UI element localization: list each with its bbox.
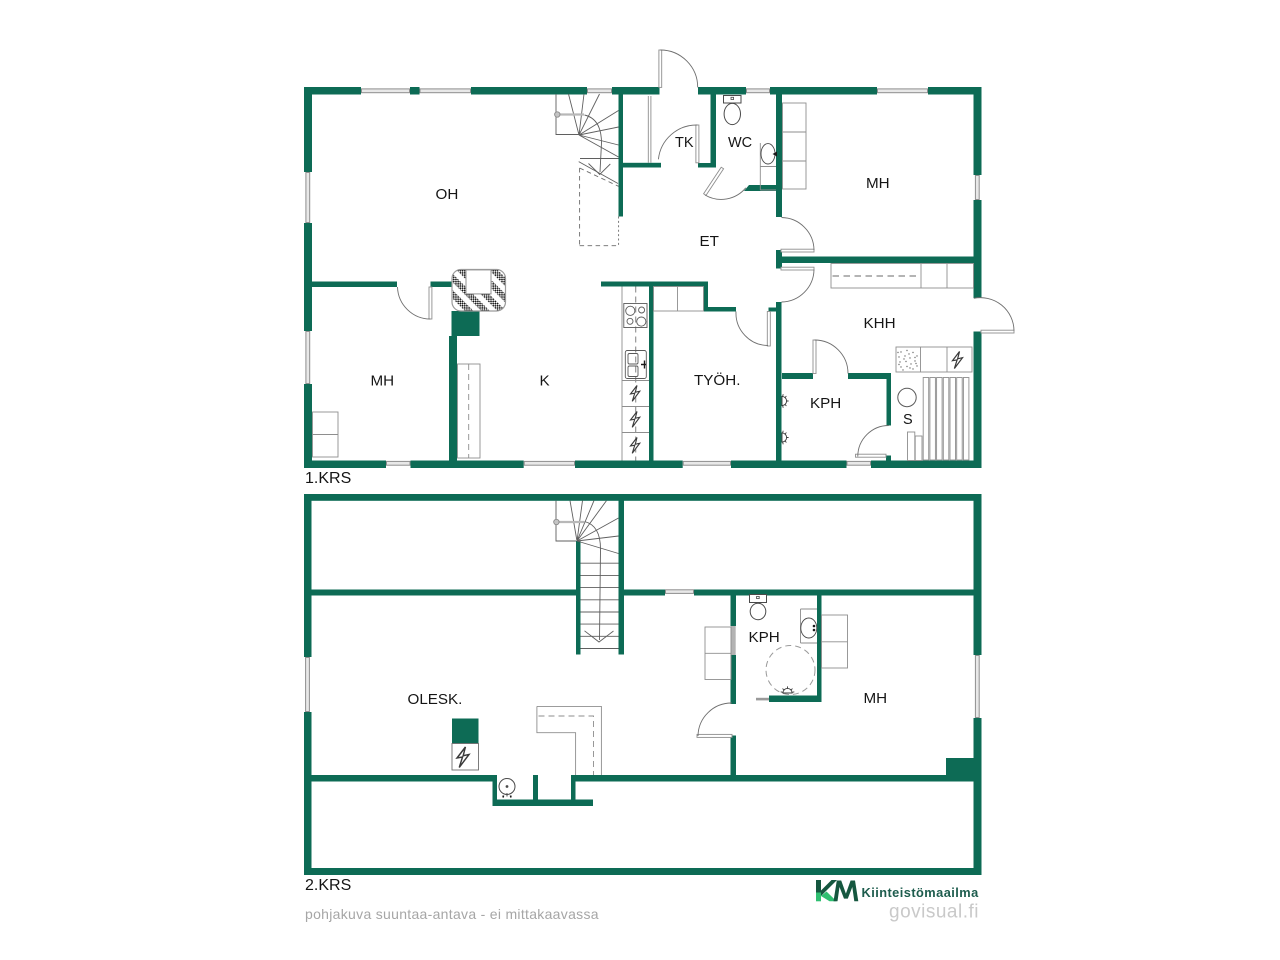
svg-text:KHH: KHH <box>864 315 896 332</box>
svg-text:MH: MH <box>866 175 890 192</box>
svg-text:ET: ET <box>700 233 719 250</box>
svg-text:MH: MH <box>864 690 888 707</box>
svg-text:OLESK.: OLESK. <box>408 691 463 708</box>
svg-text:pohjakuva suuntaa-antava - ei: pohjakuva suuntaa-antava - ei mittakaava… <box>305 906 599 922</box>
svg-text:govisual.fi: govisual.fi <box>889 902 979 923</box>
svg-text:1.KRS: 1.KRS <box>305 470 351 487</box>
svg-text:KPH: KPH <box>810 395 841 412</box>
svg-text:MH: MH <box>371 373 395 390</box>
svg-text:S: S <box>903 412 913 428</box>
svg-text:2.KRS: 2.KRS <box>305 877 351 894</box>
svg-text:TK: TK <box>675 135 694 151</box>
svg-text:K: K <box>540 373 550 390</box>
svg-text:Kiinteistömaailma: Kiinteistömaailma <box>862 885 980 900</box>
svg-text:KPH: KPH <box>749 629 780 646</box>
svg-text:OH: OH <box>436 186 459 203</box>
svg-text:TYÖH.: TYÖH. <box>694 371 740 389</box>
svg-text:WC: WC <box>728 135 752 151</box>
